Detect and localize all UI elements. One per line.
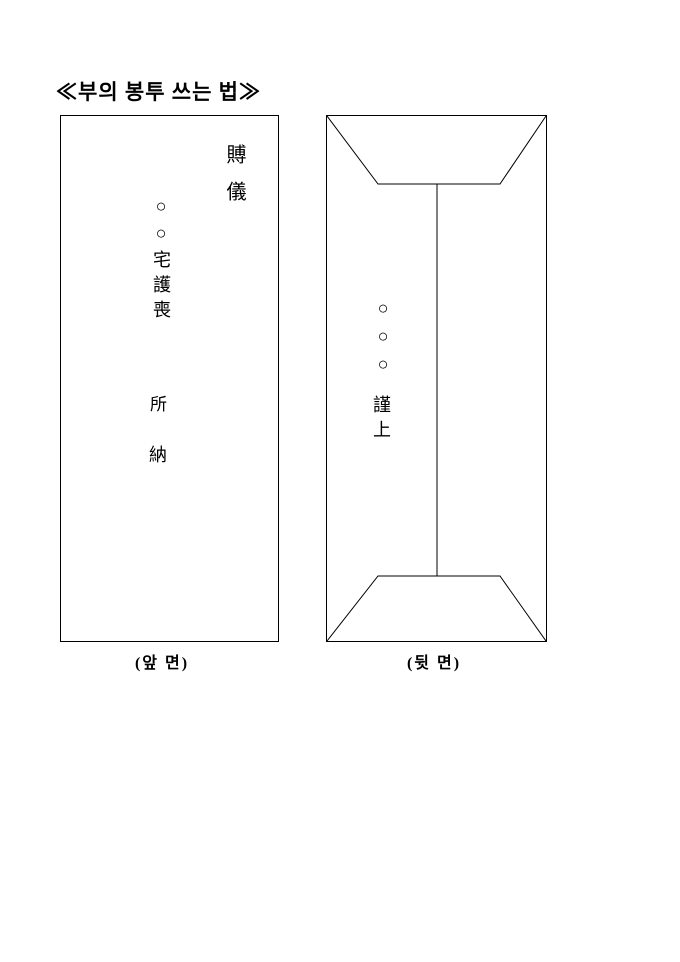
- page-title: ≪부의 봉투 쓰는 법≫: [56, 80, 261, 104]
- back-sender-sign-text: 謹上: [372, 395, 390, 445]
- front-address-bottom-text: 納: [148, 445, 166, 470]
- document-page: ≪부의 봉투 쓰는 법≫ 賻儀 ○○宅護喪 所 納 ○○○ 謹上 (앞 면) (…: [0, 0, 680, 962]
- back-envelope-caption: (뒷 면): [407, 649, 461, 673]
- top-flap-outline: [327, 116, 546, 184]
- envelope-flap-outlines: [327, 116, 546, 641]
- front-address-mid-text: 所: [148, 395, 165, 419]
- bottom-flap-outline: [327, 576, 546, 641]
- front-envelope-caption: (앞 면): [135, 649, 189, 673]
- front-address-top-text: ○○宅護喪: [152, 196, 170, 325]
- envelope-back-diagram: ○○○ 謹上: [326, 115, 547, 642]
- front-heading-text: 賻儀: [224, 144, 244, 218]
- envelope-front-diagram: 賻儀 ○○宅護喪 所 納: [60, 115, 279, 642]
- back-sender-circles-text: ○○○: [374, 298, 392, 382]
